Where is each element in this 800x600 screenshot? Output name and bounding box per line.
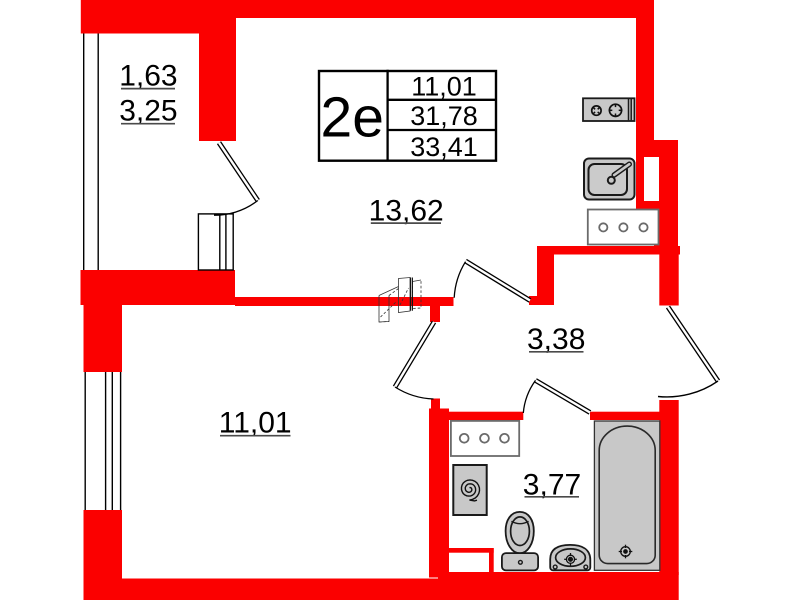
svg-text:3,25: 3,25 xyxy=(119,95,177,128)
svg-text:2е: 2е xyxy=(321,86,384,150)
svg-text:11,01: 11,01 xyxy=(219,407,292,440)
svg-text:31,78: 31,78 xyxy=(410,101,478,131)
svg-text:33,41: 33,41 xyxy=(410,132,478,162)
svg-text:1,63: 1,63 xyxy=(119,60,177,93)
svg-text:11,01: 11,01 xyxy=(411,71,477,101)
